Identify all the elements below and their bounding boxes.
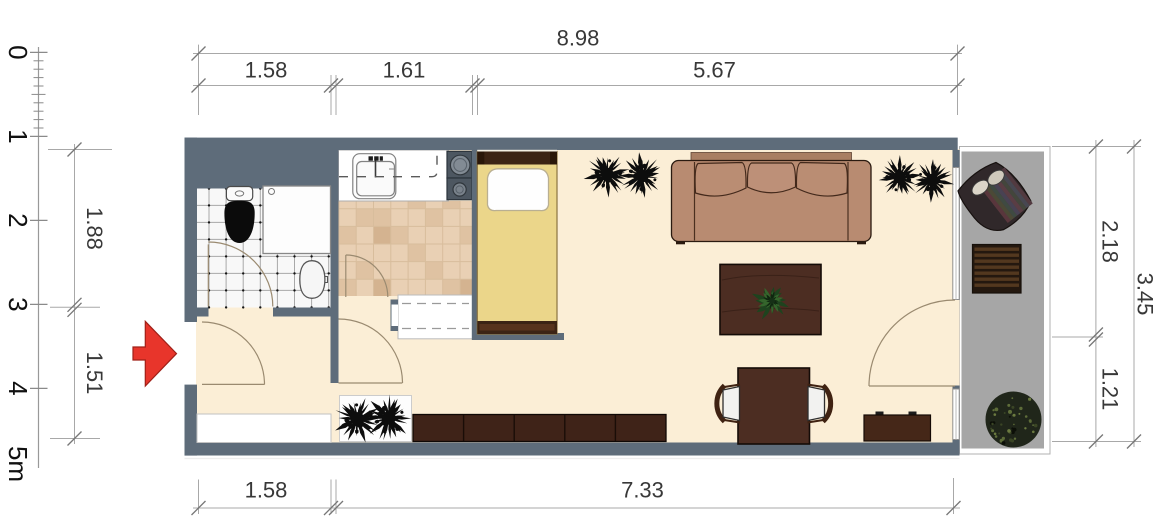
svg-text:1.58: 1.58 [245, 478, 288, 503]
svg-text:5m: 5m [3, 446, 33, 482]
svg-text:1.61: 1.61 [383, 58, 426, 83]
svg-text:0: 0 [3, 45, 33, 59]
svg-text:5.67: 5.67 [693, 58, 736, 83]
svg-text:1: 1 [3, 129, 33, 143]
svg-text:2.18: 2.18 [1098, 220, 1123, 263]
svg-text:3: 3 [3, 297, 33, 311]
svg-text:1.51: 1.51 [82, 352, 107, 395]
svg-text:3.45: 3.45 [1133, 273, 1158, 316]
svg-text:1.58: 1.58 [245, 58, 288, 83]
svg-text:2: 2 [3, 213, 33, 227]
svg-text:1.21: 1.21 [1098, 368, 1123, 411]
svg-text:7.33: 7.33 [621, 478, 664, 503]
svg-text:1.88: 1.88 [82, 207, 107, 250]
svg-text:8.98: 8.98 [557, 26, 600, 51]
svg-text:4: 4 [3, 381, 33, 395]
